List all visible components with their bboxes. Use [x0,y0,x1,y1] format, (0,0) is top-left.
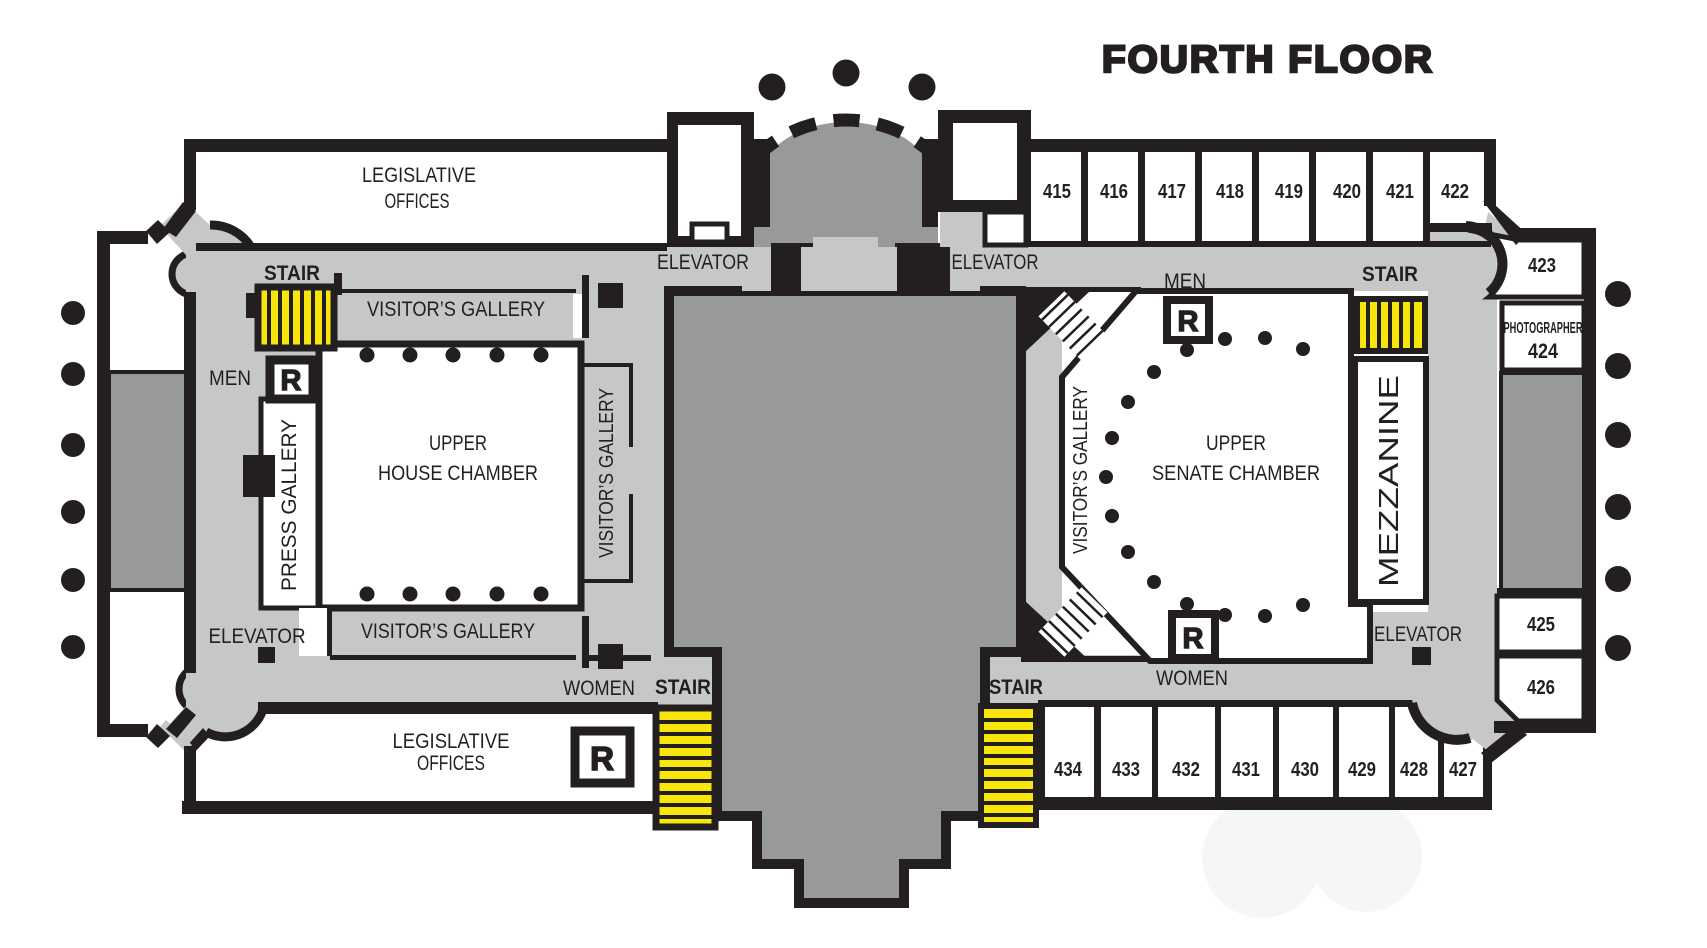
svg-text:418: 418 [1216,181,1244,203]
svg-text:LEGISLATIVE: LEGISLATIVE [362,164,476,187]
svg-text:ELEVATOR: ELEVATOR [657,251,749,274]
svg-text:FOURTH FLOOR: FOURTH FLOOR [1102,39,1434,81]
svg-text:SENATE CHAMBER: SENATE CHAMBER [1152,462,1320,485]
svg-text:423: 423 [1528,255,1556,277]
svg-text:VISITOR’S GALLERY: VISITOR’S GALLERY [1070,386,1092,554]
svg-text:426: 426 [1527,677,1555,699]
svg-text:STAIR: STAIR [1362,263,1418,286]
svg-text:HOUSE CHAMBER: HOUSE CHAMBER [378,462,538,485]
svg-text:MEZZANINE: MEZZANINE [1373,375,1404,587]
svg-text:WOMEN: WOMEN [1156,667,1228,690]
svg-text:415: 415 [1043,181,1071,203]
svg-text:OFFICES: OFFICES [417,752,485,775]
svg-text:UPPER: UPPER [429,432,487,455]
svg-text:UPPER: UPPER [1206,432,1266,455]
svg-text:420: 420 [1333,181,1361,203]
svg-text:R: R [590,740,614,777]
svg-text:424: 424 [1528,340,1558,363]
svg-text:428: 428 [1400,759,1428,781]
svg-text:419: 419 [1275,181,1303,203]
svg-text:PHOTOGRAPHER: PHOTOGRAPHER [1504,320,1583,337]
svg-text:433: 433 [1112,759,1140,781]
svg-text:ELEVATOR: ELEVATOR [952,251,1039,274]
svg-text:ELEVATOR: ELEVATOR [1374,623,1462,646]
svg-text:OFFICES: OFFICES [385,190,450,213]
svg-text:ELEVATOR: ELEVATOR [209,625,306,648]
svg-text:416: 416 [1100,181,1128,203]
svg-text:429: 429 [1348,759,1376,781]
svg-text:R: R [1183,623,1204,655]
svg-text:422: 422 [1441,181,1469,203]
svg-text:434: 434 [1054,759,1083,781]
svg-text:MEN: MEN [1164,270,1206,293]
svg-text:417: 417 [1158,181,1186,203]
svg-text:PRESS GALLERY: PRESS GALLERY [278,419,301,591]
svg-text:R: R [1178,306,1199,338]
svg-text:430: 430 [1291,759,1319,781]
svg-text:STAIR: STAIR [264,262,320,285]
svg-text:VISITOR’S GALLERY: VISITOR’S GALLERY [596,388,618,558]
svg-text:425: 425 [1527,614,1555,636]
svg-text:STAIR: STAIR [989,676,1043,699]
svg-text:VISITOR’S GALLERY: VISITOR’S GALLERY [361,620,535,643]
svg-text:LEGISLATIVE: LEGISLATIVE [393,730,510,753]
svg-text:WOMEN: WOMEN [563,677,635,700]
svg-text:431: 431 [1232,759,1260,781]
svg-text:VISITOR’S GALLERY: VISITOR’S GALLERY [367,298,545,321]
svg-text:MEN: MEN [209,367,251,390]
svg-text:427: 427 [1449,759,1477,781]
svg-text:R: R [281,365,302,397]
svg-text:432: 432 [1172,759,1200,781]
svg-text:421: 421 [1386,181,1414,203]
svg-text:STAIR: STAIR [655,676,711,699]
